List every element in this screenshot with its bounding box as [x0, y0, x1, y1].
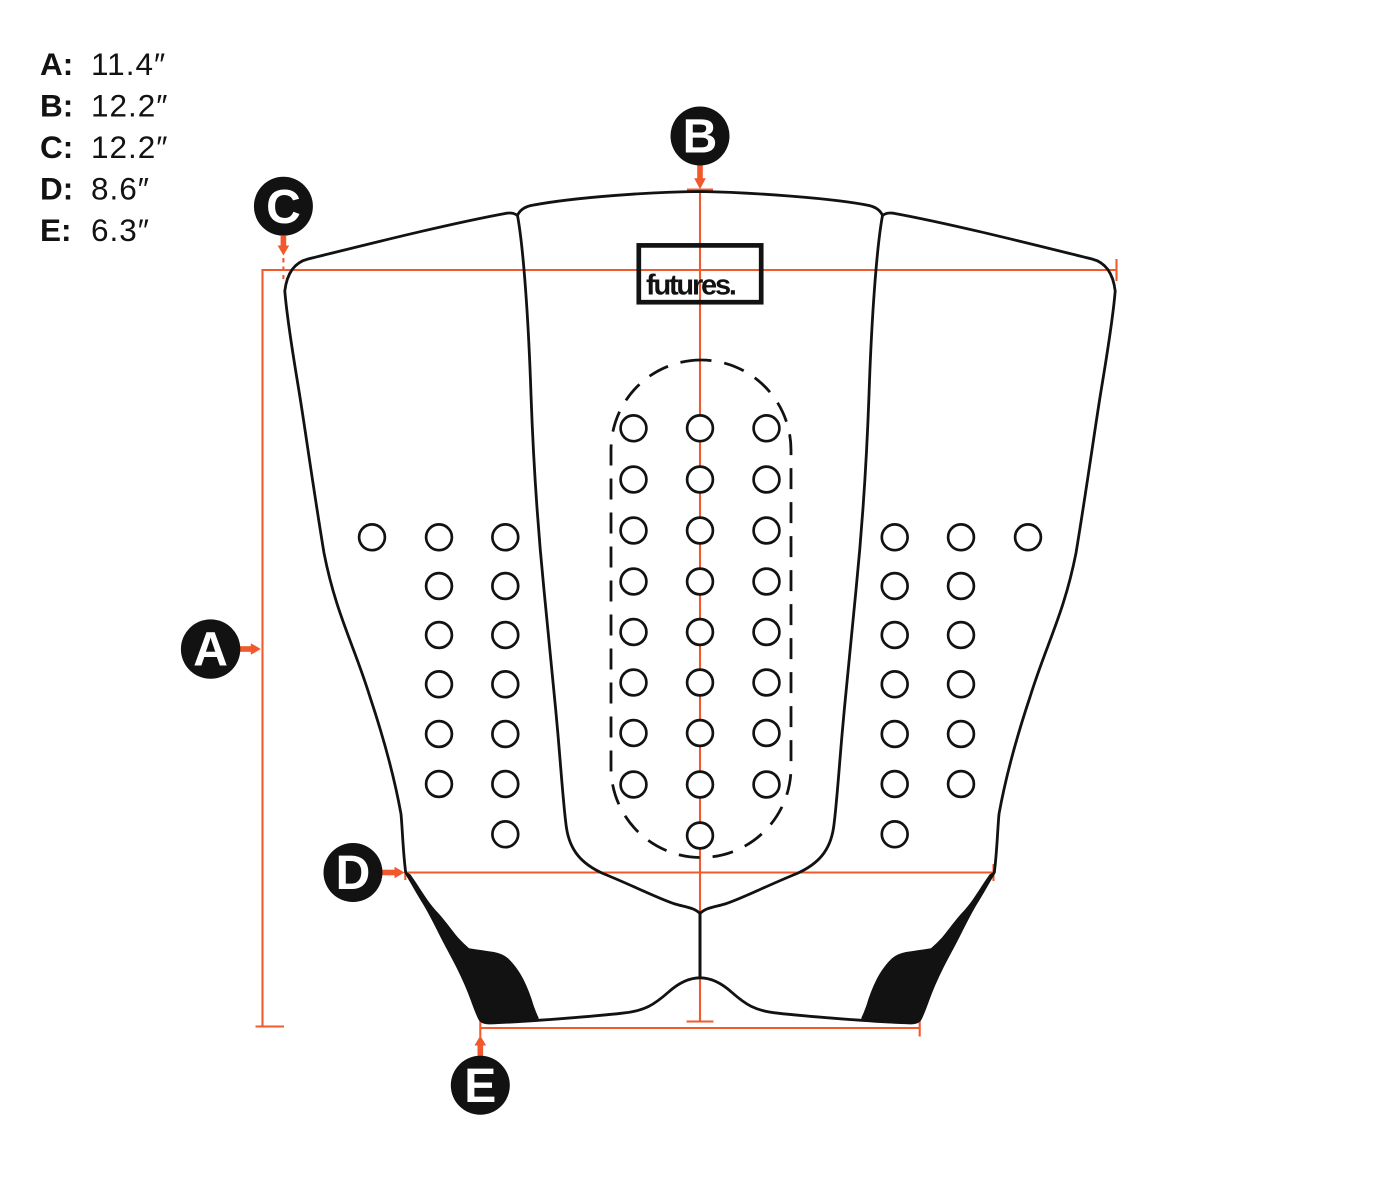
svg-text:A: A — [193, 624, 228, 677]
svg-text:12.2″: 12.2″ — [91, 129, 168, 165]
svg-text:11.4″: 11.4″ — [91, 46, 166, 82]
svg-text:D:: D: — [40, 171, 73, 207]
svg-text:B: B — [683, 111, 718, 164]
svg-text:8.6″: 8.6″ — [91, 171, 150, 207]
svg-text:B:: B: — [40, 88, 73, 124]
svg-text:E: E — [464, 1060, 496, 1113]
svg-text:E:: E: — [40, 212, 72, 248]
svg-text:6.3″: 6.3″ — [91, 212, 150, 248]
svg-text:A:: A: — [40, 46, 73, 82]
svg-text:C: C — [266, 181, 301, 234]
svg-text:futures.: futures. — [646, 270, 736, 302]
svg-text:D: D — [336, 847, 371, 900]
svg-text:12.2″: 12.2″ — [91, 88, 168, 124]
svg-text:C:: C: — [40, 129, 73, 165]
